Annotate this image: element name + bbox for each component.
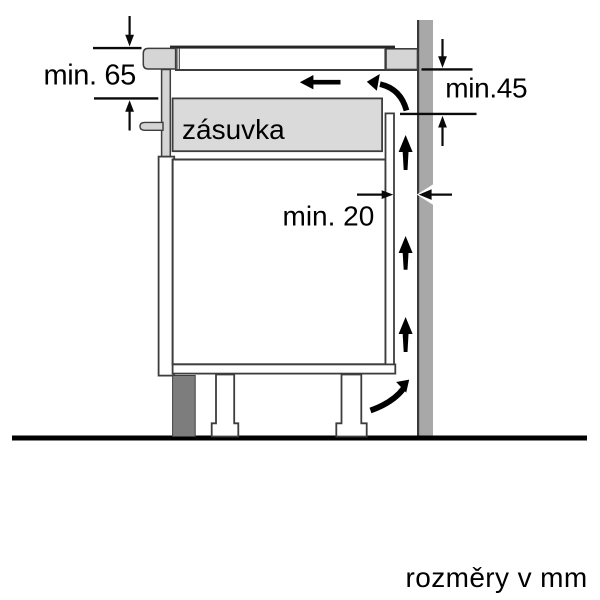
svg-text:min. 65: min. 65 [44,60,136,92]
svg-text:min.45: min.45 [445,73,527,104]
svg-text:rozměry v mm: rozměry v mm [406,562,588,593]
svg-text:min. 20: min. 20 [283,200,375,231]
svg-text:zásuvka: zásuvka [182,114,285,145]
